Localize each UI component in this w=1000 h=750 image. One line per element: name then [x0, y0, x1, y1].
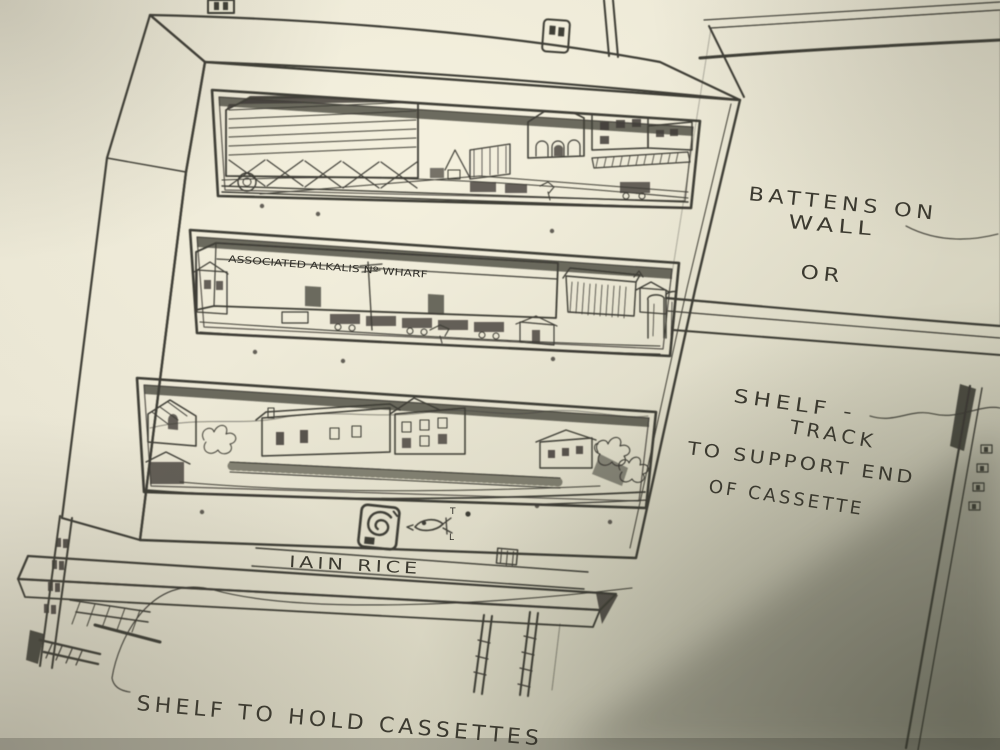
sketch-canvas: BATTENS ON WALL OR SHELF - TRACK TO SUPP…: [0, 0, 1000, 750]
photo-of-sketch: BATTENS ON WALL OR SHELF - TRACK TO SUPP…: [0, 0, 1000, 750]
fish-mark-top: T: [449, 507, 456, 517]
annotation-or: OR: [799, 261, 845, 287]
fish-mark-bottom: L: [449, 533, 454, 543]
light-highlight: [0, 0, 1000, 750]
